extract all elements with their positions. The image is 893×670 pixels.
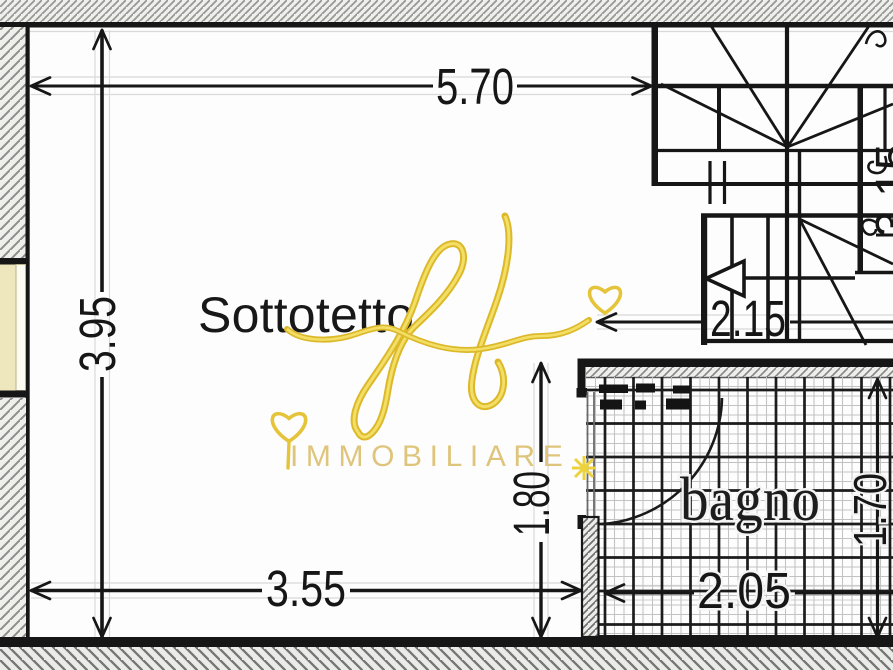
svg-text:2.05: 2.05 <box>697 562 791 619</box>
svg-text:3.15: 3.15 <box>867 144 893 237</box>
svg-text:1.70: 1.70 <box>844 473 893 547</box>
svg-text:bagno: bagno <box>680 466 820 534</box>
svg-text:1.80: 1.80 <box>503 471 560 536</box>
svg-text:2.15: 2.15 <box>710 290 786 347</box>
svg-text:3.55: 3.55 <box>266 560 346 617</box>
svg-text:IMMOBILIARE: IMMOBILIARE <box>290 440 570 473</box>
svg-text:Sottotetto: Sottotetto <box>198 287 414 343</box>
svg-text:3.95: 3.95 <box>69 296 126 372</box>
svg-text:5.70: 5.70 <box>436 58 514 115</box>
